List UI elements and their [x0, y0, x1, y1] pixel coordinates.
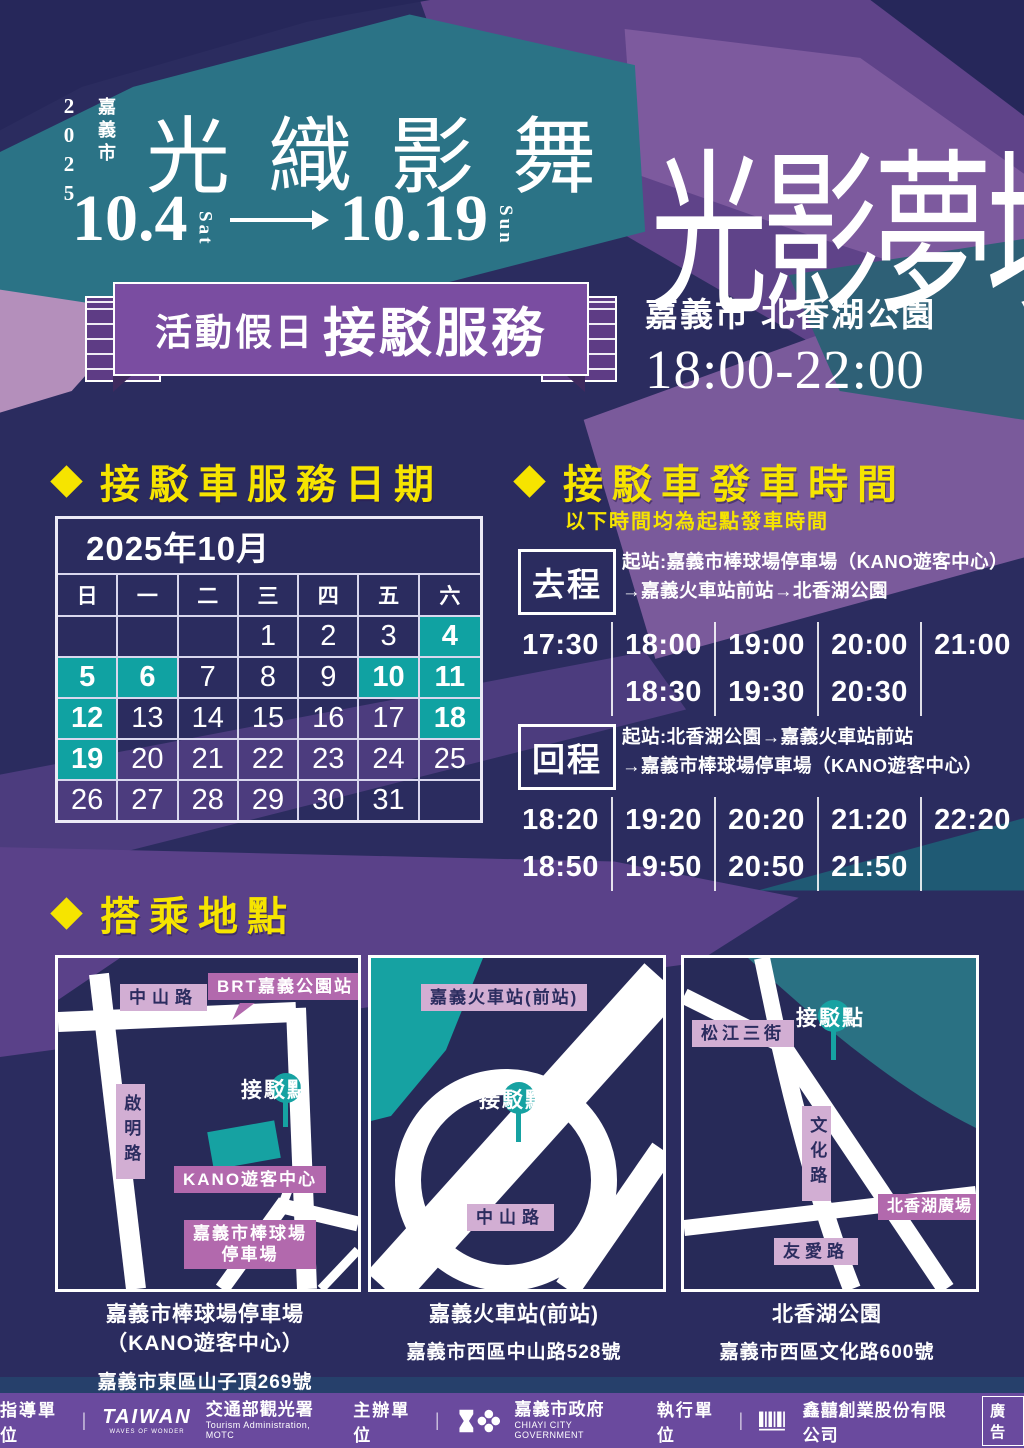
- chiayi-city-logo-icon: [456, 1406, 501, 1436]
- time-cell: [922, 844, 1023, 891]
- calendar-cell: 6: [118, 658, 178, 699]
- road-label: 友愛路: [774, 1238, 858, 1265]
- divider: |: [435, 1410, 440, 1431]
- time-cell: 20:50: [716, 844, 817, 891]
- calendar-cell: 8: [239, 658, 299, 699]
- calendar-cell: [179, 617, 239, 658]
- date-end-day: Sun: [494, 205, 516, 246]
- banner-prefix: 活動假日: [155, 302, 315, 356]
- maps-heading-label: 搭乘地點: [100, 884, 296, 942]
- date-start: 10.4: [72, 186, 188, 252]
- map-train-station: 嘉義火車站(前站) 接駁點 中山路: [368, 955, 666, 1292]
- time-cell: 17:30: [510, 622, 611, 669]
- divider: |: [82, 1410, 87, 1431]
- address: 嘉義市西區文化路600號: [681, 1337, 973, 1364]
- diamond-icon: [50, 465, 83, 498]
- road-label: 松江三街: [692, 1020, 794, 1047]
- brt-station-label: BRT嘉義公園站: [208, 973, 361, 1000]
- diamond-icon: [513, 465, 546, 498]
- plaza-label: 北香湖廣場: [878, 1194, 979, 1220]
- station-label: 嘉義火車站(前站): [421, 984, 587, 1011]
- map-park: 松江三街 接駁點 文化路 北香湖廣場 友愛路: [681, 955, 979, 1292]
- ad-badge: 廣告: [982, 1396, 1024, 1446]
- calendar-cell: [420, 781, 480, 820]
- calendar-cell: 16: [299, 699, 359, 740]
- banner-main: 活動假日 接駁服務: [113, 282, 589, 376]
- date-start-day: Sat: [194, 211, 216, 246]
- time-cell: 21:20: [819, 797, 920, 844]
- calendar-cell: 10: [359, 658, 419, 699]
- time-cell: 20:00: [819, 622, 920, 669]
- tourism-administration: 交通部觀光署 Tourism Administration, MOTC: [206, 1400, 323, 1440]
- calendar-cell: 15: [239, 699, 299, 740]
- inbound-route-line2: →嘉義市棒球場停車場（KANO遊客中心）: [622, 752, 1022, 781]
- header-city-vertical: 嘉義市: [93, 97, 119, 166]
- calendar-cell: 17: [359, 699, 419, 740]
- event-location: 嘉義市 北香湖公園: [645, 288, 936, 336]
- time-cell: [922, 669, 1023, 716]
- outbound-route: 起站:嘉義市棒球場停車場（KANO遊客中心） →嘉義火車站前站→北香湖公園: [622, 548, 1022, 605]
- event-info: 嘉義市 北香湖公園 18:00-22:00: [645, 288, 936, 401]
- time-cell: 18:30: [613, 669, 714, 716]
- calendar-month-title: 2025年10月: [58, 519, 480, 575]
- calendar-cell: 7: [179, 658, 239, 699]
- map-baseball-parking: 中山路 BRT嘉義公園站 接駁點 啟明路 KANO遊客中心 嘉義市棒球場 停車場: [55, 955, 361, 1292]
- calendar-cell: 28: [179, 781, 239, 820]
- road-label: 啟明路: [116, 1084, 145, 1179]
- date-end: 10.19: [340, 186, 489, 252]
- inbound-label: 回程: [518, 724, 616, 790]
- company-name: 鑫囍創業股份有限公司: [803, 1396, 958, 1446]
- kano-building: [207, 1120, 281, 1169]
- time-cell: 20:20: [716, 797, 817, 844]
- caption-train-station: 嘉義火車站(前站) 嘉義市西區中山路528號: [368, 1300, 660, 1364]
- time-cell: 21:50: [819, 844, 920, 891]
- time-cell: 19:50: [613, 844, 714, 891]
- diamond-icon: [50, 897, 83, 930]
- outbound-times: 17:30 18:00 18:30 19:00 19:30 20:00 20:3…: [510, 622, 1023, 716]
- parking-label: 嘉義市棒球場 停車場: [184, 1220, 316, 1269]
- calendar-cell: [58, 617, 118, 658]
- ribbon-fold-right: [567, 376, 585, 392]
- calendar-cell: 12: [58, 699, 118, 740]
- inbound-route: 起站:北香湖公園→嘉義火車站前站 →嘉義市棒球場停車場（KANO遊客中心）: [622, 723, 1022, 780]
- schedule-section-heading: 接駁車發車時間: [518, 452, 906, 510]
- time-cell: 19:30: [716, 669, 817, 716]
- calendar-cell: 11: [420, 658, 480, 699]
- date-range: 10.4 Sat 10.19 Sun: [72, 186, 524, 252]
- calendar-cell: [118, 617, 178, 658]
- calendar-cell: 2: [299, 617, 359, 658]
- calendar-cell: 29: [239, 781, 299, 820]
- calendar-cell: 26: [58, 781, 118, 820]
- outbound-route-line2: →嘉義火車站前站→北香湖公園: [622, 577, 1022, 606]
- calendar-cell: 20: [118, 740, 178, 781]
- time-cell: 18:00: [613, 622, 714, 669]
- service-calendar: 2025年10月 日 一 二 三 四 五 六 1 2 3 4 5 6 7 8 9…: [55, 516, 483, 823]
- executor-label: 執行單位: [657, 1396, 723, 1446]
- weekday-header: 四: [299, 575, 359, 617]
- calendar-cell: 21: [179, 740, 239, 781]
- ribbon-banner: 活動假日 接駁服務: [85, 282, 617, 390]
- caption-baseball-parking: 嘉義市棒球場停車場 （KANO遊客中心） 嘉義市東區山子頂269號: [55, 1300, 355, 1394]
- road-label: 中山路: [120, 984, 207, 1011]
- calendar-cell: 13: [118, 699, 178, 740]
- calendar-cell: 31: [359, 781, 419, 820]
- divider: |: [739, 1410, 744, 1431]
- weekday-header: 三: [239, 575, 299, 617]
- event-poster: 2025 嘉義市 光織影舞 光影夢境 10.4 Sat 10.19 Sun 活動…: [0, 0, 1024, 1448]
- pickup-point-label: 接駁點: [479, 1084, 548, 1114]
- calendar-grid: 日 一 二 三 四 五 六 1 2 3 4 5 6 7 8 9 10 11 12…: [58, 575, 480, 820]
- weekday-header: 六: [420, 575, 480, 617]
- time-cell: 20:30: [819, 669, 920, 716]
- time-cell: [510, 669, 611, 716]
- time-cell: 21:00: [922, 622, 1023, 669]
- calendar-cell: 24: [359, 740, 419, 781]
- weekday-header: 日: [58, 575, 118, 617]
- caption-park: 北香湖公園 嘉義市西區文化路600號: [681, 1300, 973, 1364]
- chiayi-city-government: 嘉義市政府 CHIAYI CITY GOVERNMENT: [514, 1400, 626, 1440]
- pickup-point-label: 接駁點: [241, 1074, 310, 1104]
- calendar-cell: 1: [239, 617, 299, 658]
- pickup-point-label: 接駁點: [796, 1002, 865, 1032]
- calendar-cell: 5: [58, 658, 118, 699]
- time-cell: 22:20: [922, 797, 1023, 844]
- road-label: 中山路: [467, 1204, 554, 1231]
- calendar-cell: 4: [420, 617, 480, 658]
- address: 嘉義市西區中山路528號: [368, 1337, 660, 1364]
- event-hours: 18:00-22:00: [645, 338, 936, 401]
- time-cell: 18:20: [510, 797, 611, 844]
- road-label: 文化路: [802, 1106, 831, 1201]
- arrow-icon: [230, 218, 326, 222]
- calendar-cell: 30: [299, 781, 359, 820]
- taiwan-logo: TAIWAN WAVES OF WONDER: [102, 1407, 191, 1435]
- time-cell: 19:20: [613, 797, 714, 844]
- calendar-cell: 25: [420, 740, 480, 781]
- banner-title: 接駁服務: [323, 291, 547, 367]
- weekday-header: 五: [359, 575, 419, 617]
- outbound-route-line1: 起站:嘉義市棒球場停車場（KANO遊客中心）: [622, 548, 1022, 577]
- footer: 指導單位 | TAIWAN WAVES OF WONDER 交通部觀光署 Tou…: [0, 1393, 1024, 1448]
- ribbon-fold-left: [113, 376, 131, 392]
- schedule-note: 以下時間均為起點發車時間: [565, 505, 829, 534]
- inbound-times: 18:20 18:50 19:20 19:50 20:20 20:50 21:2…: [510, 797, 1023, 891]
- outbound-label: 去程: [518, 549, 616, 615]
- kano-center-label: KANO遊客中心: [174, 1166, 326, 1193]
- calendar-section-heading: 接駁車服務日期: [55, 452, 443, 510]
- time-cell: 18:50: [510, 844, 611, 891]
- calendar-cell: 14: [179, 699, 239, 740]
- calendar-cell: 9: [299, 658, 359, 699]
- calendar-cell: 19: [58, 740, 118, 781]
- calendar-cell: 18: [420, 699, 480, 740]
- calendar-cell: 27: [118, 781, 178, 820]
- weekday-header: 一: [118, 575, 178, 617]
- company-logo-icon: [759, 1408, 788, 1434]
- schedule-heading-label: 接駁車發車時間: [563, 452, 906, 510]
- calendar-cell: 3: [359, 617, 419, 658]
- advisor-label: 指導單位: [0, 1396, 66, 1446]
- time-cell: 19:00: [716, 622, 817, 669]
- organizer-label: 主辦單位: [353, 1396, 419, 1446]
- calendar-cell: 23: [299, 740, 359, 781]
- calendar-cell: 22: [239, 740, 299, 781]
- calendar-heading-label: 接駁車服務日期: [100, 452, 443, 510]
- maps-section-heading: 搭乘地點: [55, 884, 296, 942]
- weekday-header: 二: [179, 575, 239, 617]
- inbound-route-line1: 起站:北香湖公園→嘉義火車站前站: [622, 723, 1022, 752]
- address: 嘉義市東區山子頂269號: [55, 1367, 355, 1394]
